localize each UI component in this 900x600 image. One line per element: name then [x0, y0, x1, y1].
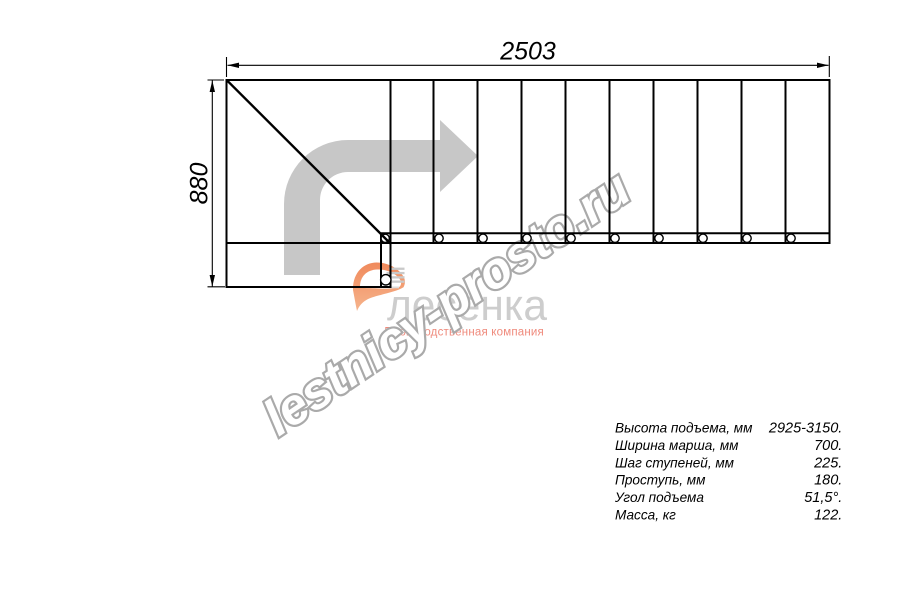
svg-text:51,5°.: 51,5°.: [804, 490, 842, 506]
svg-text:Ширина марша, мм: Ширина марша, мм: [615, 438, 739, 453]
svg-text:880: 880: [186, 163, 214, 205]
svg-text:Масса, кг: Масса, кг: [615, 508, 676, 523]
svg-text:700.: 700.: [814, 438, 842, 454]
svg-text:Шаг ступеней, мм: Шаг ступеней, мм: [615, 455, 735, 470]
svg-text:122.: 122.: [814, 508, 842, 524]
svg-text:225.: 225.: [813, 455, 842, 471]
svg-text:2925-3150.: 2925-3150.: [768, 421, 842, 437]
svg-text:Проступь, мм: Проступь, мм: [615, 473, 706, 488]
svg-text:180.: 180.: [814, 473, 842, 489]
svg-text:Высота подъема, мм: Высота подъема, мм: [615, 421, 753, 436]
svg-text:Угол подъема: Угол подъема: [614, 490, 704, 505]
svg-text:2503: 2503: [499, 38, 556, 66]
